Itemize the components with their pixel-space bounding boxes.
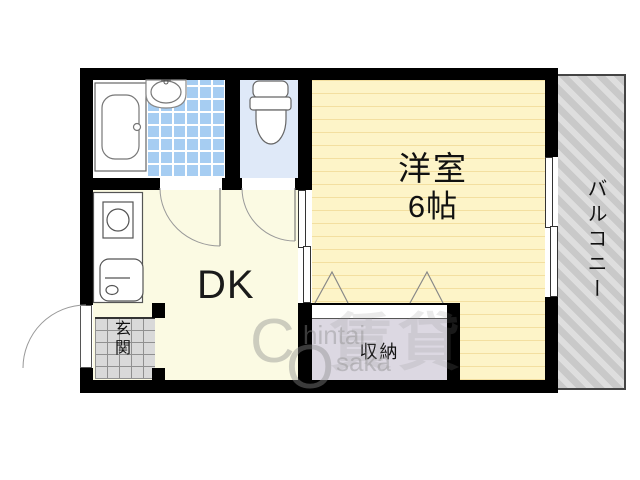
floor-plan: 洋室 6帖 DK 収納 玄関 バルコニー 賃貸 C hintai O saka [0, 0, 640, 480]
wall-left-lower [80, 368, 93, 380]
entrance-door-leaf [80, 305, 92, 368]
wall-bath-toilet-divider [225, 80, 240, 178]
balcony-window-panel-right [550, 226, 558, 297]
wall-entrance-stub-bottom [152, 368, 165, 380]
balcony-area [558, 74, 626, 390]
wall-toilet-western-divider [298, 80, 312, 190]
closet-area [312, 318, 447, 380]
toilet-room-floor [240, 80, 298, 178]
sliding-door-panel-upper [298, 190, 306, 248]
toilet-door-opening [242, 178, 295, 190]
closet-door-track [312, 303, 447, 318]
bathroom-tile-floor [146, 80, 225, 178]
wall-top [80, 68, 558, 80]
sliding-door-panel-lower [303, 246, 311, 303]
wall-entrance-stub-top [152, 303, 165, 318]
wall-right-upper [545, 80, 558, 157]
wall-between-doors [222, 178, 242, 190]
wall-dk-western-lower [298, 303, 312, 380]
wall-left-upper [80, 80, 93, 305]
entrance-door-arc-icon [23, 305, 86, 368]
entrance-tile-floor [95, 317, 155, 379]
wall-under-bathroom [93, 178, 160, 190]
bathroom-door-opening [160, 178, 222, 190]
balcony-window-panel-left [545, 157, 553, 228]
wall-right-lower [545, 297, 558, 393]
wall-closet-right [447, 303, 460, 380]
wall-bottom [80, 380, 545, 393]
wall-right-of-toilet-door [295, 178, 312, 190]
